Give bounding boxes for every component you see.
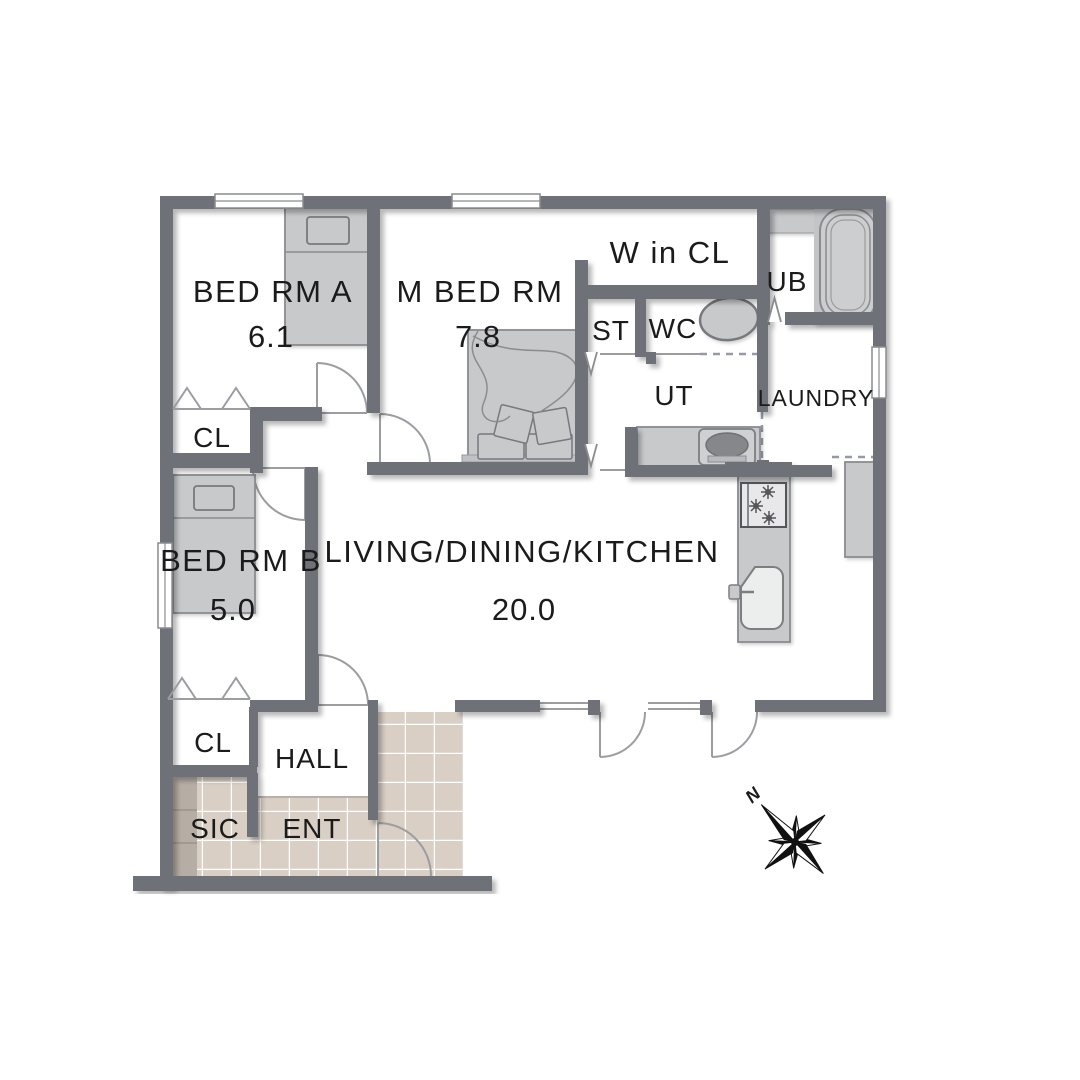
- wall-sic-ent: [247, 773, 258, 837]
- room-label-ldk: LIVING/DINING/KITCHEN: [325, 534, 720, 569]
- refrigerator: [845, 462, 877, 557]
- door-arc-terrace-2: [712, 712, 757, 757]
- wall-ub-bottom: [785, 312, 886, 325]
- room-label-m-bed-rm: M BED RM: [397, 274, 564, 309]
- wall-ub-left: [757, 196, 770, 325]
- room-label-cl-lower: CL: [194, 727, 232, 758]
- wall-hall-right: [368, 700, 378, 820]
- wall-cl-lower-bottom: [160, 765, 257, 777]
- door-arc-terrace-1: [600, 712, 645, 757]
- wall-master-bottom: [367, 462, 588, 475]
- wall-bedroomB-right: [305, 467, 318, 712]
- room-label-ent: ENT: [283, 813, 342, 844]
- wall-ut-stub: [625, 427, 637, 477]
- sink: [729, 567, 783, 629]
- area-bed-rm-b: 5.0: [210, 592, 256, 627]
- room-label-hall: HALL: [275, 743, 349, 774]
- wall-bedroomB-top: [160, 453, 263, 468]
- room-label-w-in-cl: W in CL: [610, 235, 731, 270]
- window-m-bed-rm: [452, 194, 540, 208]
- room-label-bed-rm-b: BED RM B: [160, 543, 322, 578]
- door-arc-bed-rm-b: [253, 468, 305, 520]
- wall-ut-bottom: [637, 465, 762, 477]
- bathtub: [814, 206, 876, 325]
- window-bed-rm-a: [215, 194, 303, 208]
- entrance-ground-step: [133, 876, 492, 891]
- stove: [741, 483, 786, 527]
- door-arc-bed-rm-a: [317, 363, 367, 413]
- bath-counter: [763, 209, 816, 233]
- compass-rose: N: [716, 761, 852, 900]
- wall-right: [873, 196, 886, 712]
- compass-north-label: N: [741, 783, 765, 807]
- area-m-bed-rm: 7.8: [455, 319, 501, 354]
- room-label-bed-rm-a: BED RM A: [193, 274, 353, 309]
- wall-left: [160, 196, 173, 888]
- washing-machine: [637, 427, 760, 467]
- room-label-st: ST: [592, 315, 630, 346]
- toilet: [698, 295, 760, 343]
- floor-plan-svg: BED RM A 6.1 M BED RM 7.8 W in CL UB ST …: [0, 0, 1080, 1080]
- wall-bedroomA-master: [367, 209, 380, 413]
- room-label-ut: UT: [654, 380, 693, 411]
- area-bed-rm-a: 6.1: [248, 319, 294, 354]
- door-arc-m-bed-rm: [380, 414, 430, 464]
- kitchen-counter: [729, 474, 790, 642]
- closet-front-lower: [168, 678, 250, 699]
- room-label-laundry: LAUNDRY: [758, 385, 875, 411]
- room-label-ub: UB: [767, 266, 808, 297]
- floor-plan-page: BED RM A 6.1 M BED RM 7.8 W in CL UB ST …: [0, 0, 1080, 1080]
- wall-cl-lower-right: [249, 707, 258, 767]
- wall-wincl-bottom: [583, 285, 763, 299]
- room-label-sic: SIC: [190, 813, 240, 844]
- room-label-wc: WC: [649, 313, 698, 344]
- room-label-cl-upper: CL: [193, 422, 231, 453]
- area-ldk: 20.0: [492, 592, 556, 627]
- wall-st-wc: [635, 297, 646, 357]
- closet-front-upper: [173, 388, 250, 409]
- door-arc-hall: [318, 655, 368, 705]
